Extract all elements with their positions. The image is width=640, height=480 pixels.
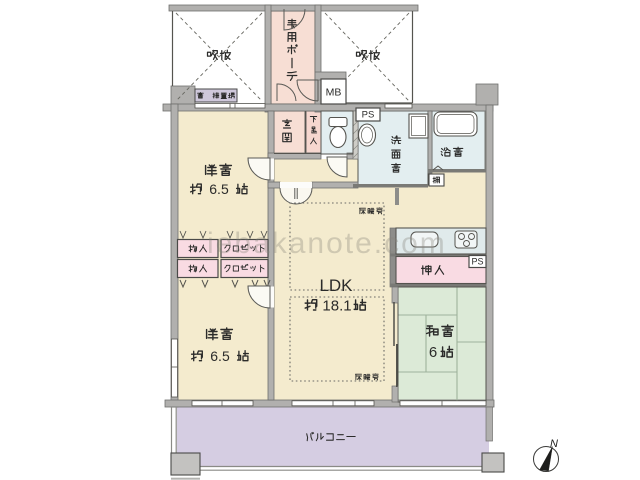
svg-text:PS: PS xyxy=(362,110,375,121)
svg-text:18.1: 18.1 xyxy=(322,298,351,315)
svg-text:MB: MB xyxy=(326,87,342,99)
svg-text:6.5: 6.5 xyxy=(209,181,229,197)
svg-text:PS: PS xyxy=(471,257,483,267)
svg-text:N: N xyxy=(550,438,558,450)
svg-text:LDK: LDK xyxy=(319,276,353,295)
svg-text:6.5: 6.5 xyxy=(210,348,230,364)
svg-text:iebakanote.com: iebakanote.com xyxy=(207,227,447,260)
svg-text:6: 6 xyxy=(429,344,437,361)
